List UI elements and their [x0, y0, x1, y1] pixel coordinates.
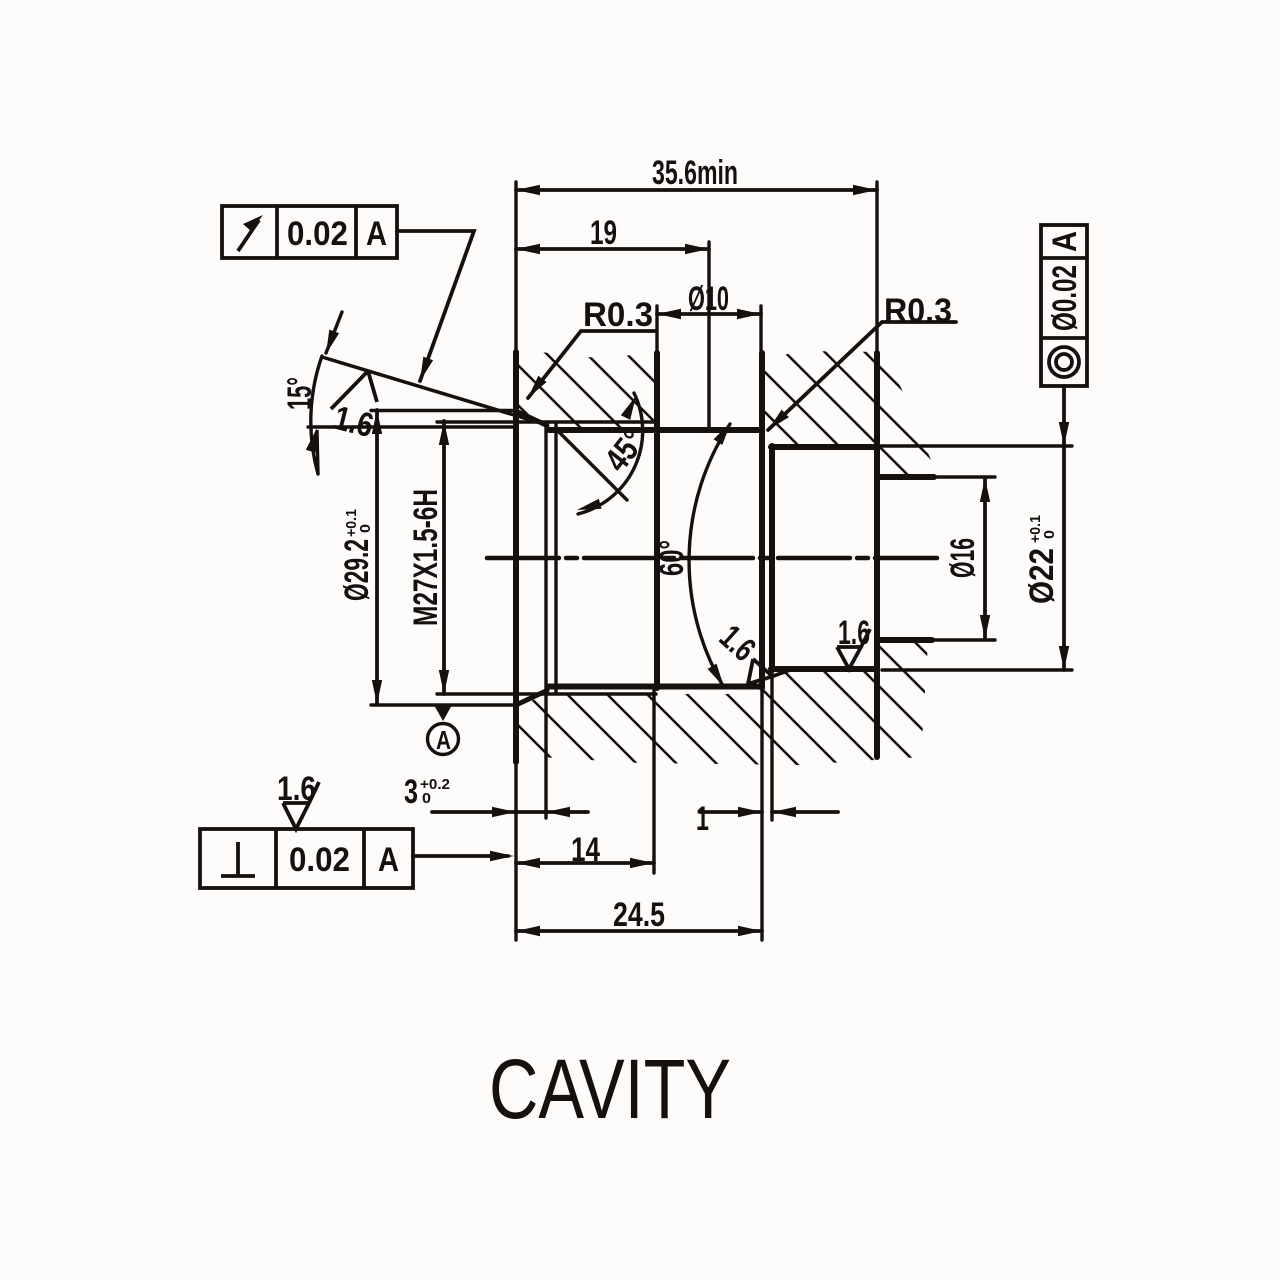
svg-text:Ø16: Ø16 [944, 538, 982, 578]
svg-text:0: 0 [357, 524, 374, 533]
svg-text:14: 14 [571, 831, 600, 869]
svg-text:0.02: 0.02 [287, 215, 348, 253]
svg-text:60°: 60° [653, 540, 691, 576]
svg-text:R0.3: R0.3 [884, 292, 952, 330]
svg-text:M27X1.5-6H: M27X1.5-6H [407, 489, 445, 626]
svg-text:3: 3 [404, 773, 418, 811]
svg-text:1.6: 1.6 [838, 614, 870, 652]
svg-text:Ø29.2: Ø29.2 [338, 539, 376, 601]
svg-text:Ø0.02: Ø0.02 [1046, 265, 1084, 331]
svg-text:19: 19 [590, 214, 617, 252]
svg-text:0: 0 [422, 790, 431, 807]
svg-text:Ø10: Ø10 [688, 280, 729, 318]
svg-text:R0.3: R0.3 [583, 296, 653, 334]
svg-text:1.6: 1.6 [330, 399, 377, 445]
svg-text:0.02: 0.02 [289, 841, 350, 879]
svg-text:Ø22: Ø22 [1023, 548, 1061, 604]
svg-text:A: A [366, 215, 387, 253]
svg-text:A: A [378, 841, 399, 879]
svg-text:A: A [436, 725, 451, 755]
svg-text:1: 1 [696, 800, 709, 838]
svg-text:35.6min: 35.6min [652, 154, 738, 192]
svg-text:0: 0 [1041, 530, 1058, 539]
svg-text:15°: 15° [281, 377, 319, 410]
svg-text:A: A [1046, 231, 1084, 252]
svg-text:CAVITY: CAVITY [489, 1042, 731, 1136]
svg-text:1.6: 1.6 [277, 770, 316, 808]
svg-text:24.5: 24.5 [613, 896, 665, 934]
